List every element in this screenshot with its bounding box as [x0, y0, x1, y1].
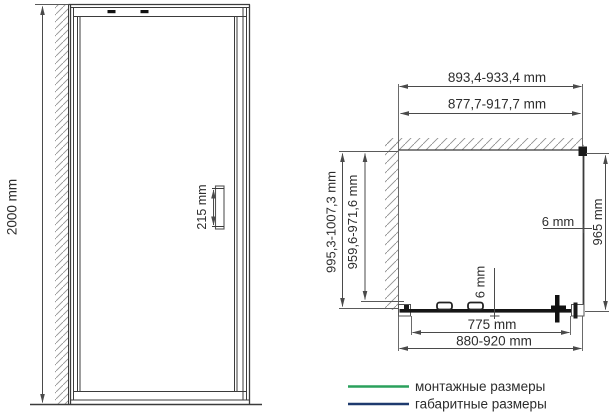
- plan-top-wall-hatch: [386, 138, 584, 150]
- overall-width-dimension-label: 893,4-933,4 mm: [448, 70, 546, 85]
- door-glass-width-dimension: 775 mm: [412, 316, 571, 335]
- door-knob-grip: [551, 306, 566, 312]
- roller-left: [437, 303, 452, 310]
- top-rail-clamp-left: [108, 10, 116, 13]
- side-glass-thickness-dimension: 6 mm: [542, 214, 592, 233]
- side-panel-dimension: 965 mm: [585, 154, 609, 312]
- top-rail-clamp-right: [141, 10, 149, 13]
- front-elevation-view: 2000 mm 215: [5, 4, 263, 405]
- shower-enclosure-dimension-drawing: 2000 mm 215: [0, 0, 610, 413]
- right-profile-clamp: [574, 303, 578, 319]
- left-profile-clamp: [404, 305, 409, 309]
- plan-left-wall-hatch: [385, 140, 398, 310]
- door-handle: 215 mm: [195, 184, 224, 229]
- front-height-dimension-label: 2000 mm: [5, 179, 20, 235]
- legend-overall-label: габаритные размеры: [415, 397, 547, 412]
- legend-mounting-label: монтажные размеры: [415, 379, 545, 394]
- legend: монтажные размеры габаритные размеры: [348, 379, 547, 412]
- mounting-width-dimension-label: 877,7-917,7 mm: [448, 97, 546, 112]
- right-wall-profile: [572, 305, 585, 317]
- side-panel-dimension-label: 965 mm: [590, 199, 605, 246]
- mounting-depth-dimension-label: 959,6-971,6 mm: [345, 175, 360, 270]
- drawing-svg: 2000 mm 215: [0, 0, 610, 413]
- door-glass-thickness-label: 6 mm: [473, 266, 488, 299]
- adjustment-width-label: 880-920 mm: [456, 334, 532, 349]
- overall-depth-dimension-label: 995,3-1007,3 mm: [324, 171, 339, 273]
- plan-view: 893,4-933,4 mm 877,7-917,7 mm 995,3-1007…: [324, 70, 610, 351]
- front-wall-hatch: [55, 4, 69, 405]
- door-glass-width-label: 775 mm: [468, 317, 517, 332]
- roller-right: [468, 303, 483, 310]
- handle-dimension-label: 215 mm: [195, 184, 209, 229]
- wall-profile-bracket: [579, 147, 588, 157]
- handle-body: [216, 186, 225, 229]
- side-glass-thickness-label: 6 mm: [542, 214, 575, 229]
